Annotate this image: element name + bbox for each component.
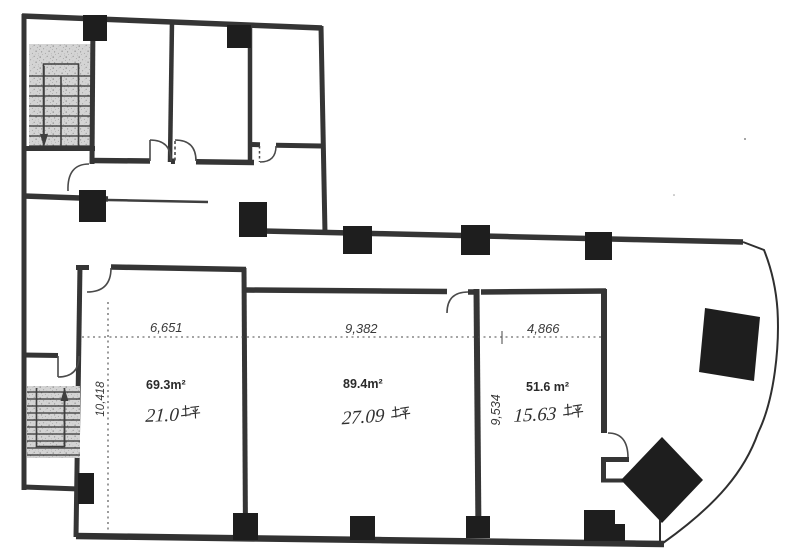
svg-text:21.0: 21.0 (145, 405, 180, 427)
svg-text:27.09: 27.09 (341, 405, 385, 429)
svg-text:89.4m²: 89.4m² (343, 377, 383, 391)
svg-text:69.3m²: 69.3m² (146, 378, 186, 392)
svg-text:6,651: 6,651 (150, 320, 183, 335)
svg-text:9,534: 9,534 (489, 394, 503, 425)
svg-text:10,418: 10,418 (95, 381, 107, 417)
svg-text:15.63: 15.63 (513, 404, 557, 427)
svg-text:51.6 m²: 51.6 m² (526, 380, 569, 394)
svg-text:9,382: 9,382 (345, 321, 378, 336)
svg-text:4,866: 4,866 (527, 321, 560, 336)
